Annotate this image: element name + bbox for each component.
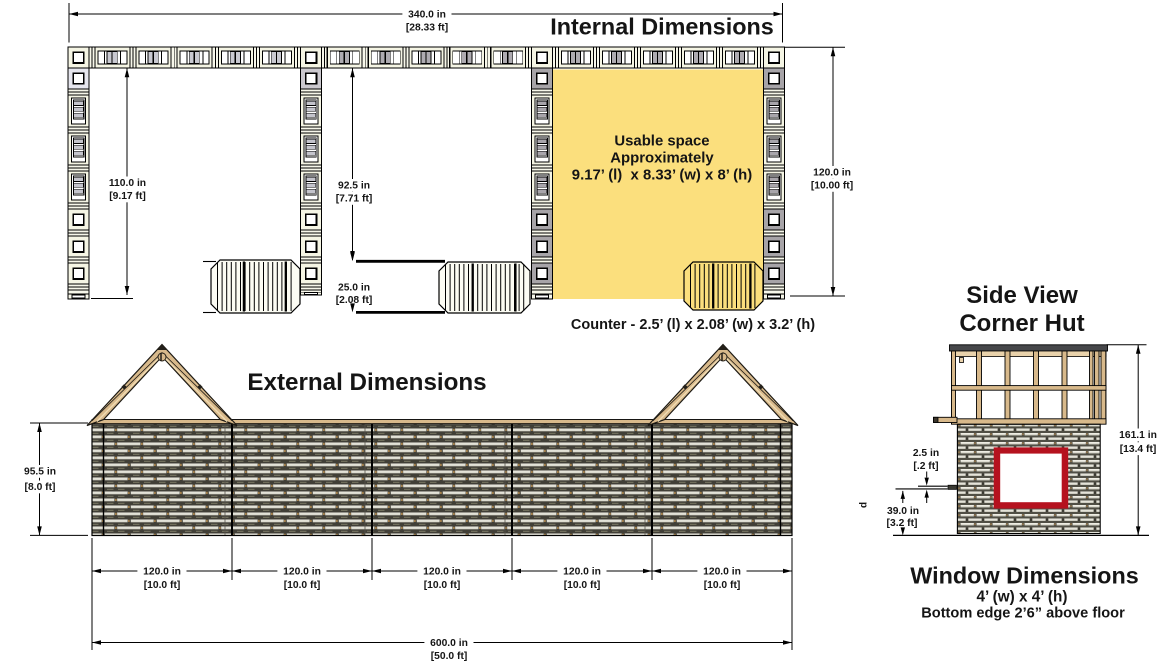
svg-text:External Dimensions: External Dimensions — [247, 369, 486, 396]
svg-text:120.0 in: 120.0 in — [143, 566, 181, 577]
svg-text:Approximately: Approximately — [610, 151, 714, 167]
svg-text:9.17’ (l) x 8.33’ (w) x 8’ (h: 9.17’ (l) x 8.33’ (w) x 8’ (h) — [572, 168, 752, 184]
svg-text:25.0 in: 25.0 in — [338, 283, 370, 294]
svg-text:4’ (w) x 4’ (h): 4’ (w) x 4’ (h) — [977, 589, 1068, 606]
svg-text:Counter - 2.5’ (l) x 2.08’ (w): Counter - 2.5’ (l) x 2.08’ (w) x 3.2’ (h… — [571, 317, 815, 333]
svg-text:39.0 in: 39.0 in — [887, 506, 919, 517]
svg-text:Side View: Side View — [966, 282, 1078, 309]
svg-text:600.0 in: 600.0 in — [430, 638, 468, 649]
svg-text:2.5 in: 2.5 in — [913, 448, 939, 459]
svg-text:[10.0 ft]: [10.0 ft] — [144, 580, 181, 591]
svg-text:[.2 ft]: [.2 ft] — [913, 461, 938, 472]
svg-text:[7.71 ft]: [7.71 ft] — [336, 194, 373, 205]
svg-text:[8.0 ft]: [8.0 ft] — [25, 482, 56, 493]
svg-text:d: d — [859, 502, 870, 508]
svg-text:161.1 in: 161.1 in — [1119, 430, 1157, 441]
svg-text:[10.0 ft]: [10.0 ft] — [424, 580, 461, 591]
svg-text:[50.0 ft]: [50.0 ft] — [431, 651, 468, 662]
svg-text:[13.4 ft]: [13.4 ft] — [1120, 444, 1157, 455]
svg-text:[28.33 ft]: [28.33 ft] — [406, 23, 448, 34]
svg-text:120.0 in: 120.0 in — [703, 566, 741, 577]
svg-text:340.0 in: 340.0 in — [408, 10, 446, 21]
svg-text:[10.0 ft]: [10.0 ft] — [284, 580, 321, 591]
svg-text:Internal Dimensions: Internal Dimensions — [550, 14, 774, 40]
svg-text:Window Dimensions: Window Dimensions — [910, 563, 1139, 589]
svg-text:Corner Hut: Corner Hut — [959, 310, 1084, 337]
svg-text:120.0 in: 120.0 in — [813, 168, 851, 179]
svg-text:120.0 in: 120.0 in — [423, 566, 461, 577]
svg-text:120.0 in: 120.0 in — [283, 566, 321, 577]
svg-text:[9.17 ft]: [9.17 ft] — [109, 191, 146, 202]
svg-text:92.5 in: 92.5 in — [338, 181, 370, 192]
svg-text:[10.0 ft]: [10.0 ft] — [564, 580, 601, 591]
svg-text:110.0 in: 110.0 in — [109, 178, 146, 189]
svg-text:Bottom edge 2’6” above floor: Bottom edge 2’6” above floor — [921, 606, 1125, 622]
svg-text:[10.0 ft]: [10.0 ft] — [704, 580, 741, 591]
svg-text:[3.2 ft]: [3.2 ft] — [887, 518, 918, 529]
svg-text:Usable space: Usable space — [614, 134, 709, 150]
svg-text:95.5 in: 95.5 in — [24, 467, 56, 478]
svg-text:[10.00 ft]: [10.00 ft] — [811, 181, 853, 192]
svg-text:120.0 in: 120.0 in — [563, 566, 601, 577]
